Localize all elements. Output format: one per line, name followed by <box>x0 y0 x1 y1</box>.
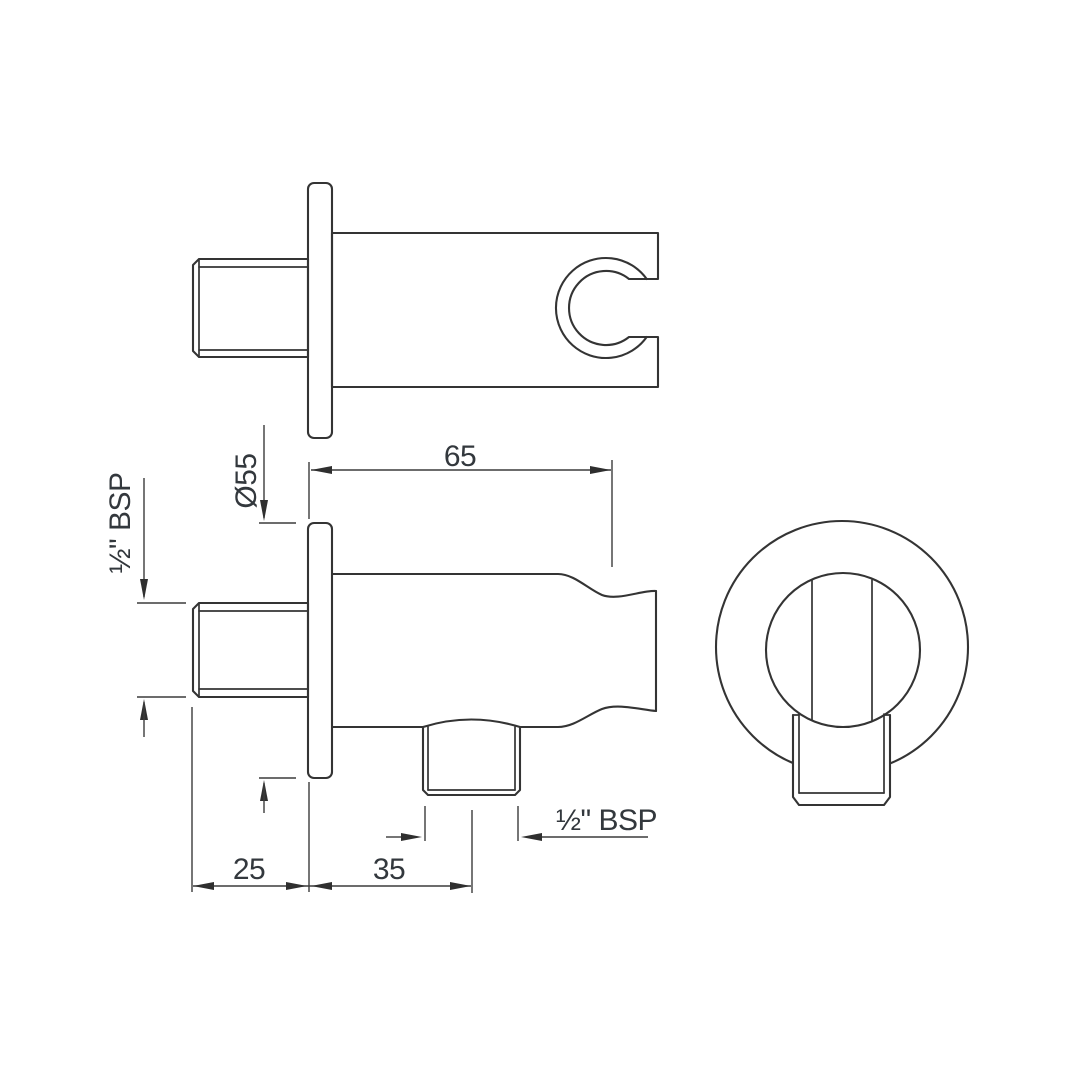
shower-outlet-drawing: Ø55 ½" BSP 65 <box>0 0 1080 1080</box>
front-view-thread-outline <box>193 603 308 697</box>
top-view-thread-outline <box>193 259 308 357</box>
dim-flange-diameter: Ø55 <box>230 425 296 813</box>
side-view <box>716 521 968 805</box>
front-view-flange <box>308 523 332 778</box>
front-view-outlet-silhouette <box>423 727 520 795</box>
dim-inlet-thread: ½" BSP <box>104 472 186 737</box>
outlet-offset-label: 35 <box>373 853 405 886</box>
arrowhead-mid-right <box>286 882 307 890</box>
arrowhead-down <box>140 579 148 600</box>
arrowhead-right <box>401 833 422 841</box>
arrowhead-right <box>590 466 611 474</box>
top-view-flange <box>308 183 332 438</box>
technical-drawing-page: Ø55 ½" BSP 65 <box>0 0 1080 1080</box>
top-view-body-outline <box>332 233 658 387</box>
flange-diameter-label: Ø55 <box>230 453 263 508</box>
dimensions: Ø55 ½" BSP 65 <box>104 425 657 893</box>
body-length-label: 65 <box>444 440 476 473</box>
arrowhead-left <box>521 833 542 841</box>
arrowhead-left <box>311 466 332 474</box>
front-view <box>193 523 656 795</box>
top-view <box>193 183 658 438</box>
inlet-thread-label: ½" BSP <box>104 472 137 573</box>
outlet-thread-label: ½" BSP <box>556 804 657 837</box>
side-view-outlet-mask <box>793 715 890 805</box>
front-view-bottom-profile <box>521 707 656 727</box>
side-view-holder-ring <box>766 573 920 727</box>
arrowhead-right-outer <box>450 882 471 890</box>
dim-body-length: 65 <box>309 440 612 567</box>
arrowhead-left-outer <box>193 882 214 890</box>
front-view-outlet-shoulder <box>423 720 520 728</box>
dim-outlet-thread: ½" BSP <box>386 804 657 841</box>
wall-depth-label: 25 <box>233 853 265 886</box>
front-view-top-profile <box>332 574 656 597</box>
arrowhead-mid-left <box>311 882 332 890</box>
